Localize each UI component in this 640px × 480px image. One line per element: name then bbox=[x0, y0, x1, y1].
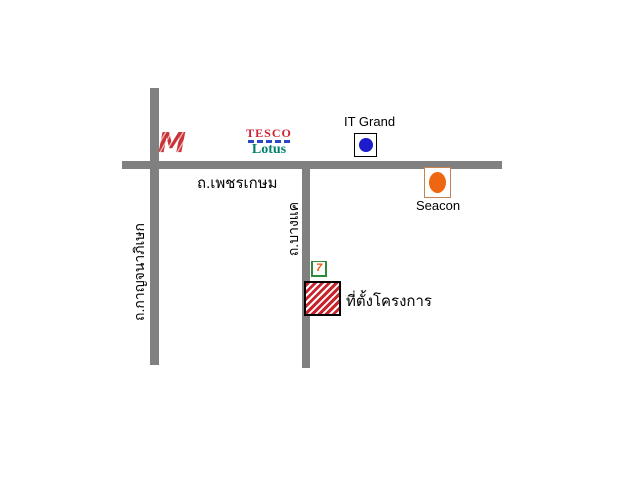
the-mall-m-icon: M bbox=[157, 126, 195, 156]
bangkhae-road-label: ถ.บางแค bbox=[285, 199, 301, 259]
it-grand-marker bbox=[354, 133, 377, 157]
seacon-marker bbox=[424, 167, 451, 198]
seacon-orange-dot-icon bbox=[429, 172, 446, 193]
it-grand-label: IT Grand bbox=[344, 114, 395, 129]
the-mall-logo-icon: M bbox=[157, 126, 195, 156]
road-bangkhae bbox=[302, 169, 310, 368]
seven-eleven-icon: 7 bbox=[311, 261, 327, 277]
it-grand-blue-dot-icon bbox=[359, 138, 373, 152]
lotus-text: Lotus bbox=[244, 143, 294, 157]
phetkasem-road-label: ถ.เพชรเกษม bbox=[197, 171, 278, 195]
svg-text:M: M bbox=[158, 126, 186, 156]
tesco-lotus-logo: TESCO Lotus bbox=[244, 127, 294, 157]
project-site-marker bbox=[304, 281, 341, 316]
kanchanaphisek-road-label: ถ.กาญจนาภิเษก bbox=[131, 217, 147, 327]
seacon-label: Seacon bbox=[416, 198, 460, 213]
project-site-label: ที่ตั้งโครงการ bbox=[346, 289, 432, 313]
map-canvas: ถ.เพชรเกษม ถ.กาญจนาภิเษก ถ.บางแค M TESCO… bbox=[0, 0, 640, 480]
tesco-text: TESCO bbox=[244, 127, 294, 139]
